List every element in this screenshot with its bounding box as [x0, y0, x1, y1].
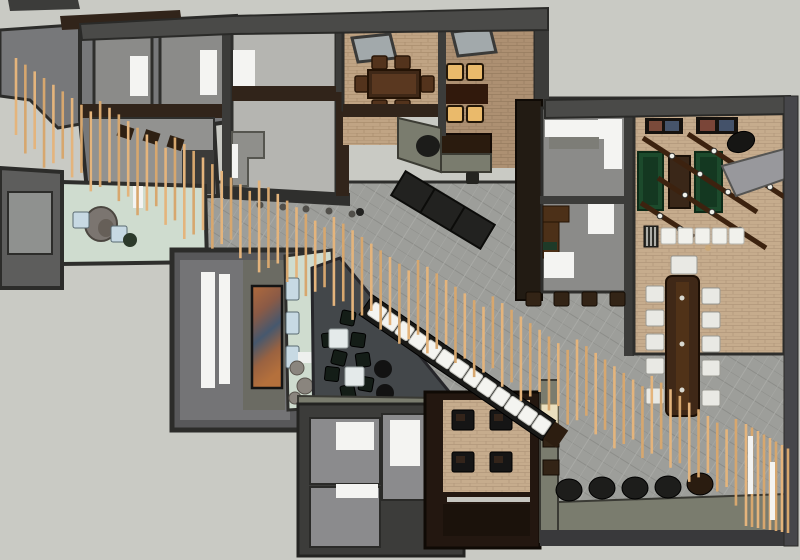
skylight — [452, 28, 496, 56]
stool — [466, 172, 479, 184]
window-panel — [8, 192, 52, 254]
white-bar-stools — [661, 228, 744, 244]
fixture-panel — [390, 420, 420, 466]
bench-cushion — [598, 119, 622, 139]
floor-knob — [705, 245, 711, 251]
rock — [290, 361, 304, 375]
fixture-panel — [336, 484, 378, 498]
desk — [543, 206, 569, 222]
cabinet-hood — [441, 134, 491, 154]
table-fixture — [680, 342, 685, 347]
round-table — [416, 135, 440, 157]
glass-strip — [447, 497, 530, 502]
left-room — [0, 168, 62, 288]
lounge-seat — [73, 212, 89, 228]
whiteboard-panel — [130, 56, 148, 96]
south-wood-band — [343, 104, 443, 117]
south-wall — [540, 530, 796, 546]
booth-dark-floor — [443, 504, 530, 536]
bench-cushion — [544, 252, 574, 278]
dining-table-top — [372, 74, 416, 94]
kitchen — [222, 18, 356, 218]
wood-credenza-band — [80, 104, 232, 118]
door-leaf — [232, 144, 238, 178]
wall-table — [543, 460, 559, 475]
table-fixture — [680, 388, 685, 393]
whiteboard-panel — [200, 50, 217, 95]
rock — [297, 378, 313, 394]
bench-base — [549, 137, 599, 149]
fixture-panel — [336, 422, 374, 450]
divider-wall — [438, 18, 446, 136]
room-divider — [540, 196, 628, 204]
fence-white-slat — [748, 436, 753, 494]
bar-stool — [356, 208, 364, 216]
meeting-room-b-floor — [160, 30, 230, 116]
mat — [543, 242, 557, 250]
cabinet-band — [232, 86, 336, 101]
bench-cushion — [545, 120, 603, 137]
glazing-panel — [201, 272, 215, 388]
floor-plan-canvas — [0, 0, 800, 560]
plant — [123, 233, 137, 247]
booth-table — [444, 84, 488, 104]
wood-feature-wall — [516, 100, 542, 300]
bench-cushion — [604, 139, 622, 169]
east-outer-wall — [784, 96, 798, 546]
right-wing-north-wall — [545, 96, 790, 118]
brick-terrace — [343, 117, 400, 145]
floor-plan-svg — [0, 0, 800, 560]
portrait-artwork — [252, 286, 282, 388]
table-fixture — [680, 296, 685, 301]
round-pouf — [374, 360, 392, 378]
fence-white-slat — [770, 462, 775, 520]
head-chair — [671, 256, 697, 274]
lounge-table — [345, 367, 364, 386]
lounge-table — [329, 329, 348, 348]
glazing-panel — [219, 274, 230, 384]
service-counter — [441, 154, 491, 172]
wall-bench — [286, 312, 299, 334]
